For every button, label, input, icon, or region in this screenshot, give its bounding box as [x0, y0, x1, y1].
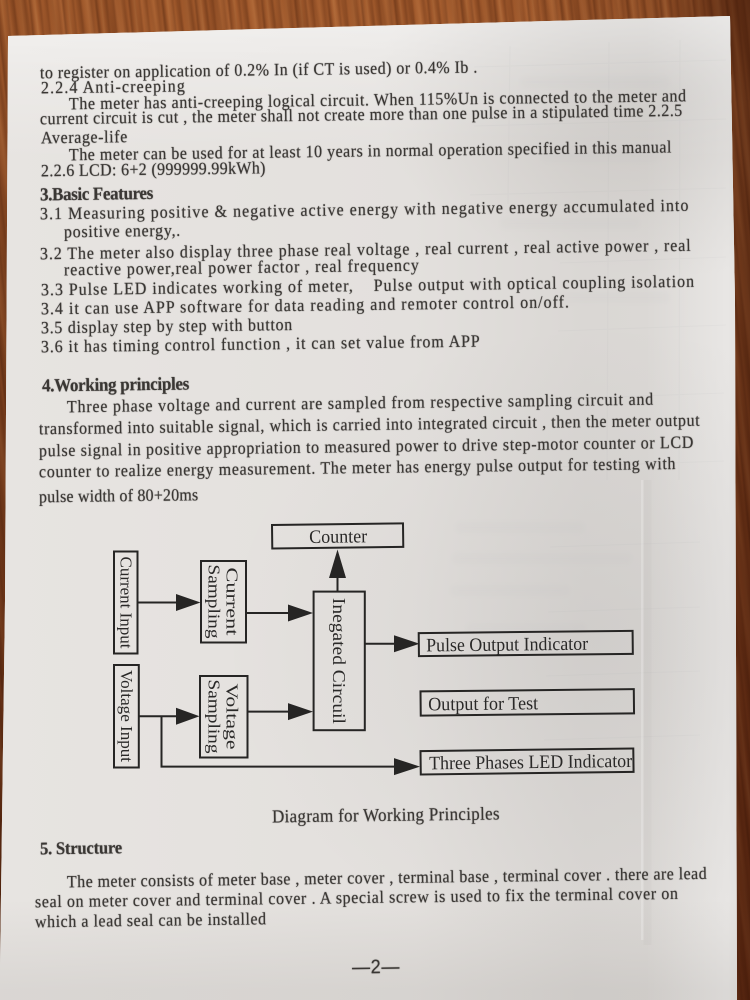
svg-text:Pulse Output Indicator: Pulse Output Indicator: [426, 634, 589, 657]
svg-text:Sampling: Sampling: [205, 565, 224, 639]
svg-text:Voltage: Voltage: [223, 684, 242, 750]
svg-text:Current: Current: [223, 568, 242, 637]
svg-text:Inegated Circuil: Inegated Circuil: [329, 598, 349, 724]
svg-text:Output for Test: Output for Test: [428, 693, 539, 715]
svg-text:Sampling: Sampling: [205, 680, 224, 754]
svg-text:Counter: Counter: [309, 526, 368, 548]
svg-text:Current Input: Current Input: [117, 557, 136, 649]
svg-text:Three Phases LED Indicator: Three Phases LED Indicator: [429, 751, 633, 774]
svg-text:Voltage Input: Voltage Input: [117, 670, 136, 762]
